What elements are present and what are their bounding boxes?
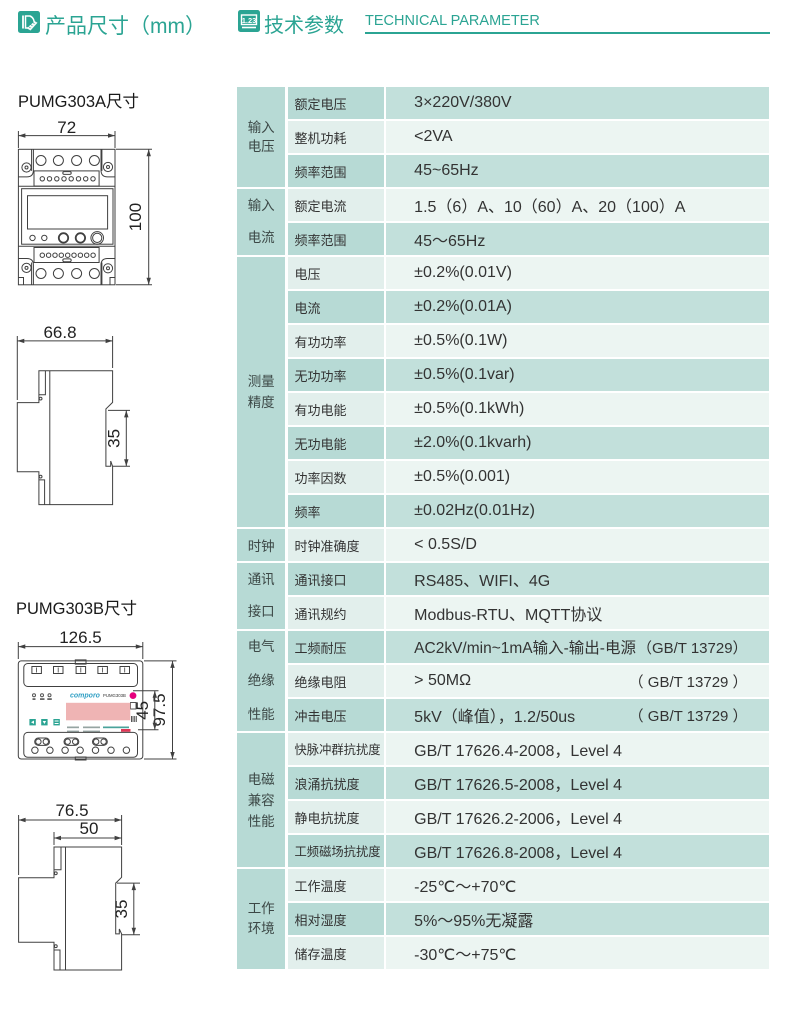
svg-text:1.23: 1.23 (242, 16, 257, 25)
svg-text:35: 35 (112, 900, 131, 919)
svg-text:76.5: 76.5 (55, 801, 88, 820)
svg-text:50: 50 (80, 819, 99, 838)
